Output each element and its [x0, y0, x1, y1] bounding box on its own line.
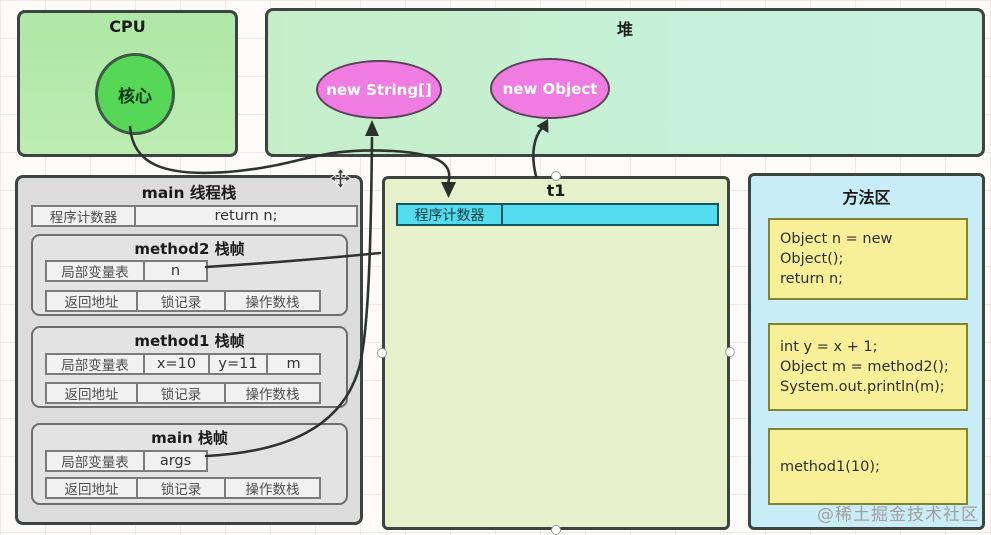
stack-frame-main[interactable]: main 栈帧 局部变量表 args 返回地址 锁记录 操作数栈	[31, 423, 348, 505]
selection-handle-left[interactable]	[377, 348, 387, 358]
code-text: method1(10);	[770, 451, 890, 483]
method-area-title: 方法区	[751, 184, 982, 208]
operand-stack-cell[interactable]: 操作数栈	[224, 290, 321, 312]
t1-title: t1	[385, 181, 727, 200]
frame-bottom-row: 返回地址 锁记录 操作数栈	[45, 290, 321, 312]
stack-frame-method2[interactable]: method2 栈帧 局部变量表 n 返回地址 锁记录 操作数栈	[31, 234, 348, 316]
frame-title: main 栈帧	[33, 427, 346, 448]
cpu-box[interactable]: CPU 核心	[17, 10, 238, 157]
selection-handle-right[interactable]	[725, 347, 735, 357]
heap-object-new-object[interactable]: new Object	[490, 58, 610, 119]
move-cursor-icon	[329, 167, 352, 194]
t1-program-counter-cell[interactable]: 程序计数器	[396, 203, 503, 226]
lock-record-cell[interactable]: 锁记录	[136, 477, 226, 499]
heap-object-label: new Object	[503, 80, 598, 98]
var-cell-x[interactable]: x=10	[143, 353, 210, 375]
frame-title: method1 栈帧	[33, 330, 346, 351]
local-var-table-cell[interactable]: 局部变量表	[45, 260, 145, 282]
local-vars-row: 局部变量表 args	[45, 450, 208, 472]
frame-bottom-row: 返回地址 锁记录 操作数栈	[45, 382, 321, 404]
diagram-canvas: CPU 核心 堆 new String[] new Object main 线程…	[0, 0, 991, 535]
program-counter-value-cell[interactable]: return n;	[134, 205, 358, 227]
method-area-box[interactable]: 方法区 Object n = new Object(); return n; i…	[748, 173, 985, 530]
t1-program-counter-value-cell[interactable]	[501, 203, 719, 226]
frame-bottom-row: 返回地址 锁记录 操作数栈	[45, 477, 321, 499]
operand-stack-cell[interactable]: 操作数栈	[224, 382, 321, 404]
heap-object-label: new String[]	[326, 81, 432, 99]
local-vars-row: 局部变量表 n	[45, 260, 208, 282]
local-var-table-cell[interactable]: 局部变量表	[45, 450, 145, 472]
code-block-method1-body[interactable]: int y = x + 1; Object m = method2(); Sys…	[768, 323, 968, 411]
local-vars-row: 局部变量表 x=10 y=11 m	[45, 353, 321, 375]
program-counter-cell[interactable]: 程序计数器	[31, 205, 136, 227]
frame-title: method2 栈帧	[33, 238, 346, 259]
code-block-method2-body[interactable]: Object n = new Object(); return n;	[768, 218, 968, 300]
cpu-core-circle[interactable]: 核心	[95, 53, 175, 135]
local-var-table-cell[interactable]: 局部变量表	[45, 353, 145, 375]
var-cell-y[interactable]: y=11	[208, 353, 268, 375]
return-address-cell[interactable]: 返回地址	[45, 382, 138, 404]
heap-title: 堆	[268, 16, 982, 40]
var-cell-args[interactable]: args	[143, 450, 208, 472]
return-address-cell[interactable]: 返回地址	[45, 290, 138, 312]
operand-stack-cell[interactable]: 操作数栈	[224, 477, 321, 499]
return-address-cell[interactable]: 返回地址	[45, 477, 138, 499]
selection-handle-bottom[interactable]	[551, 525, 561, 535]
var-cell-n[interactable]: n	[143, 260, 208, 282]
main-thread-stack-box[interactable]: main 线程栈 程序计数器 return n; method2 栈帧 局部变量…	[15, 175, 363, 525]
cpu-title: CPU	[20, 17, 235, 36]
t1-pc-row: 程序计数器	[396, 203, 719, 226]
main-thread-stack-title: main 线程栈	[18, 181, 360, 203]
stack-frame-method1[interactable]: method1 栈帧 局部变量表 x=10 y=11 m 返回地址 锁记录 操作…	[31, 326, 348, 408]
t1-thread-stack-box[interactable]: t1 程序计数器	[382, 176, 730, 530]
code-block-main-call[interactable]: method1(10);	[768, 428, 968, 505]
cpu-core-label: 核心	[118, 82, 152, 107]
selection-handle-top[interactable]	[551, 171, 561, 181]
code-text: int y = x + 1; Object m = method2(); Sys…	[770, 331, 959, 403]
heap-object-new-string-array[interactable]: new String[]	[316, 60, 442, 119]
lock-record-cell[interactable]: 锁记录	[136, 382, 226, 404]
main-pc-row: 程序计数器 return n;	[31, 205, 358, 227]
lock-record-cell[interactable]: 锁记录	[136, 290, 226, 312]
code-text: Object n = new Object(); return n;	[770, 223, 966, 295]
watermark: @稀土掘金技术社区	[817, 500, 979, 525]
var-cell-m[interactable]: m	[266, 353, 321, 375]
heap-box[interactable]: 堆 new String[] new Object	[265, 8, 985, 157]
